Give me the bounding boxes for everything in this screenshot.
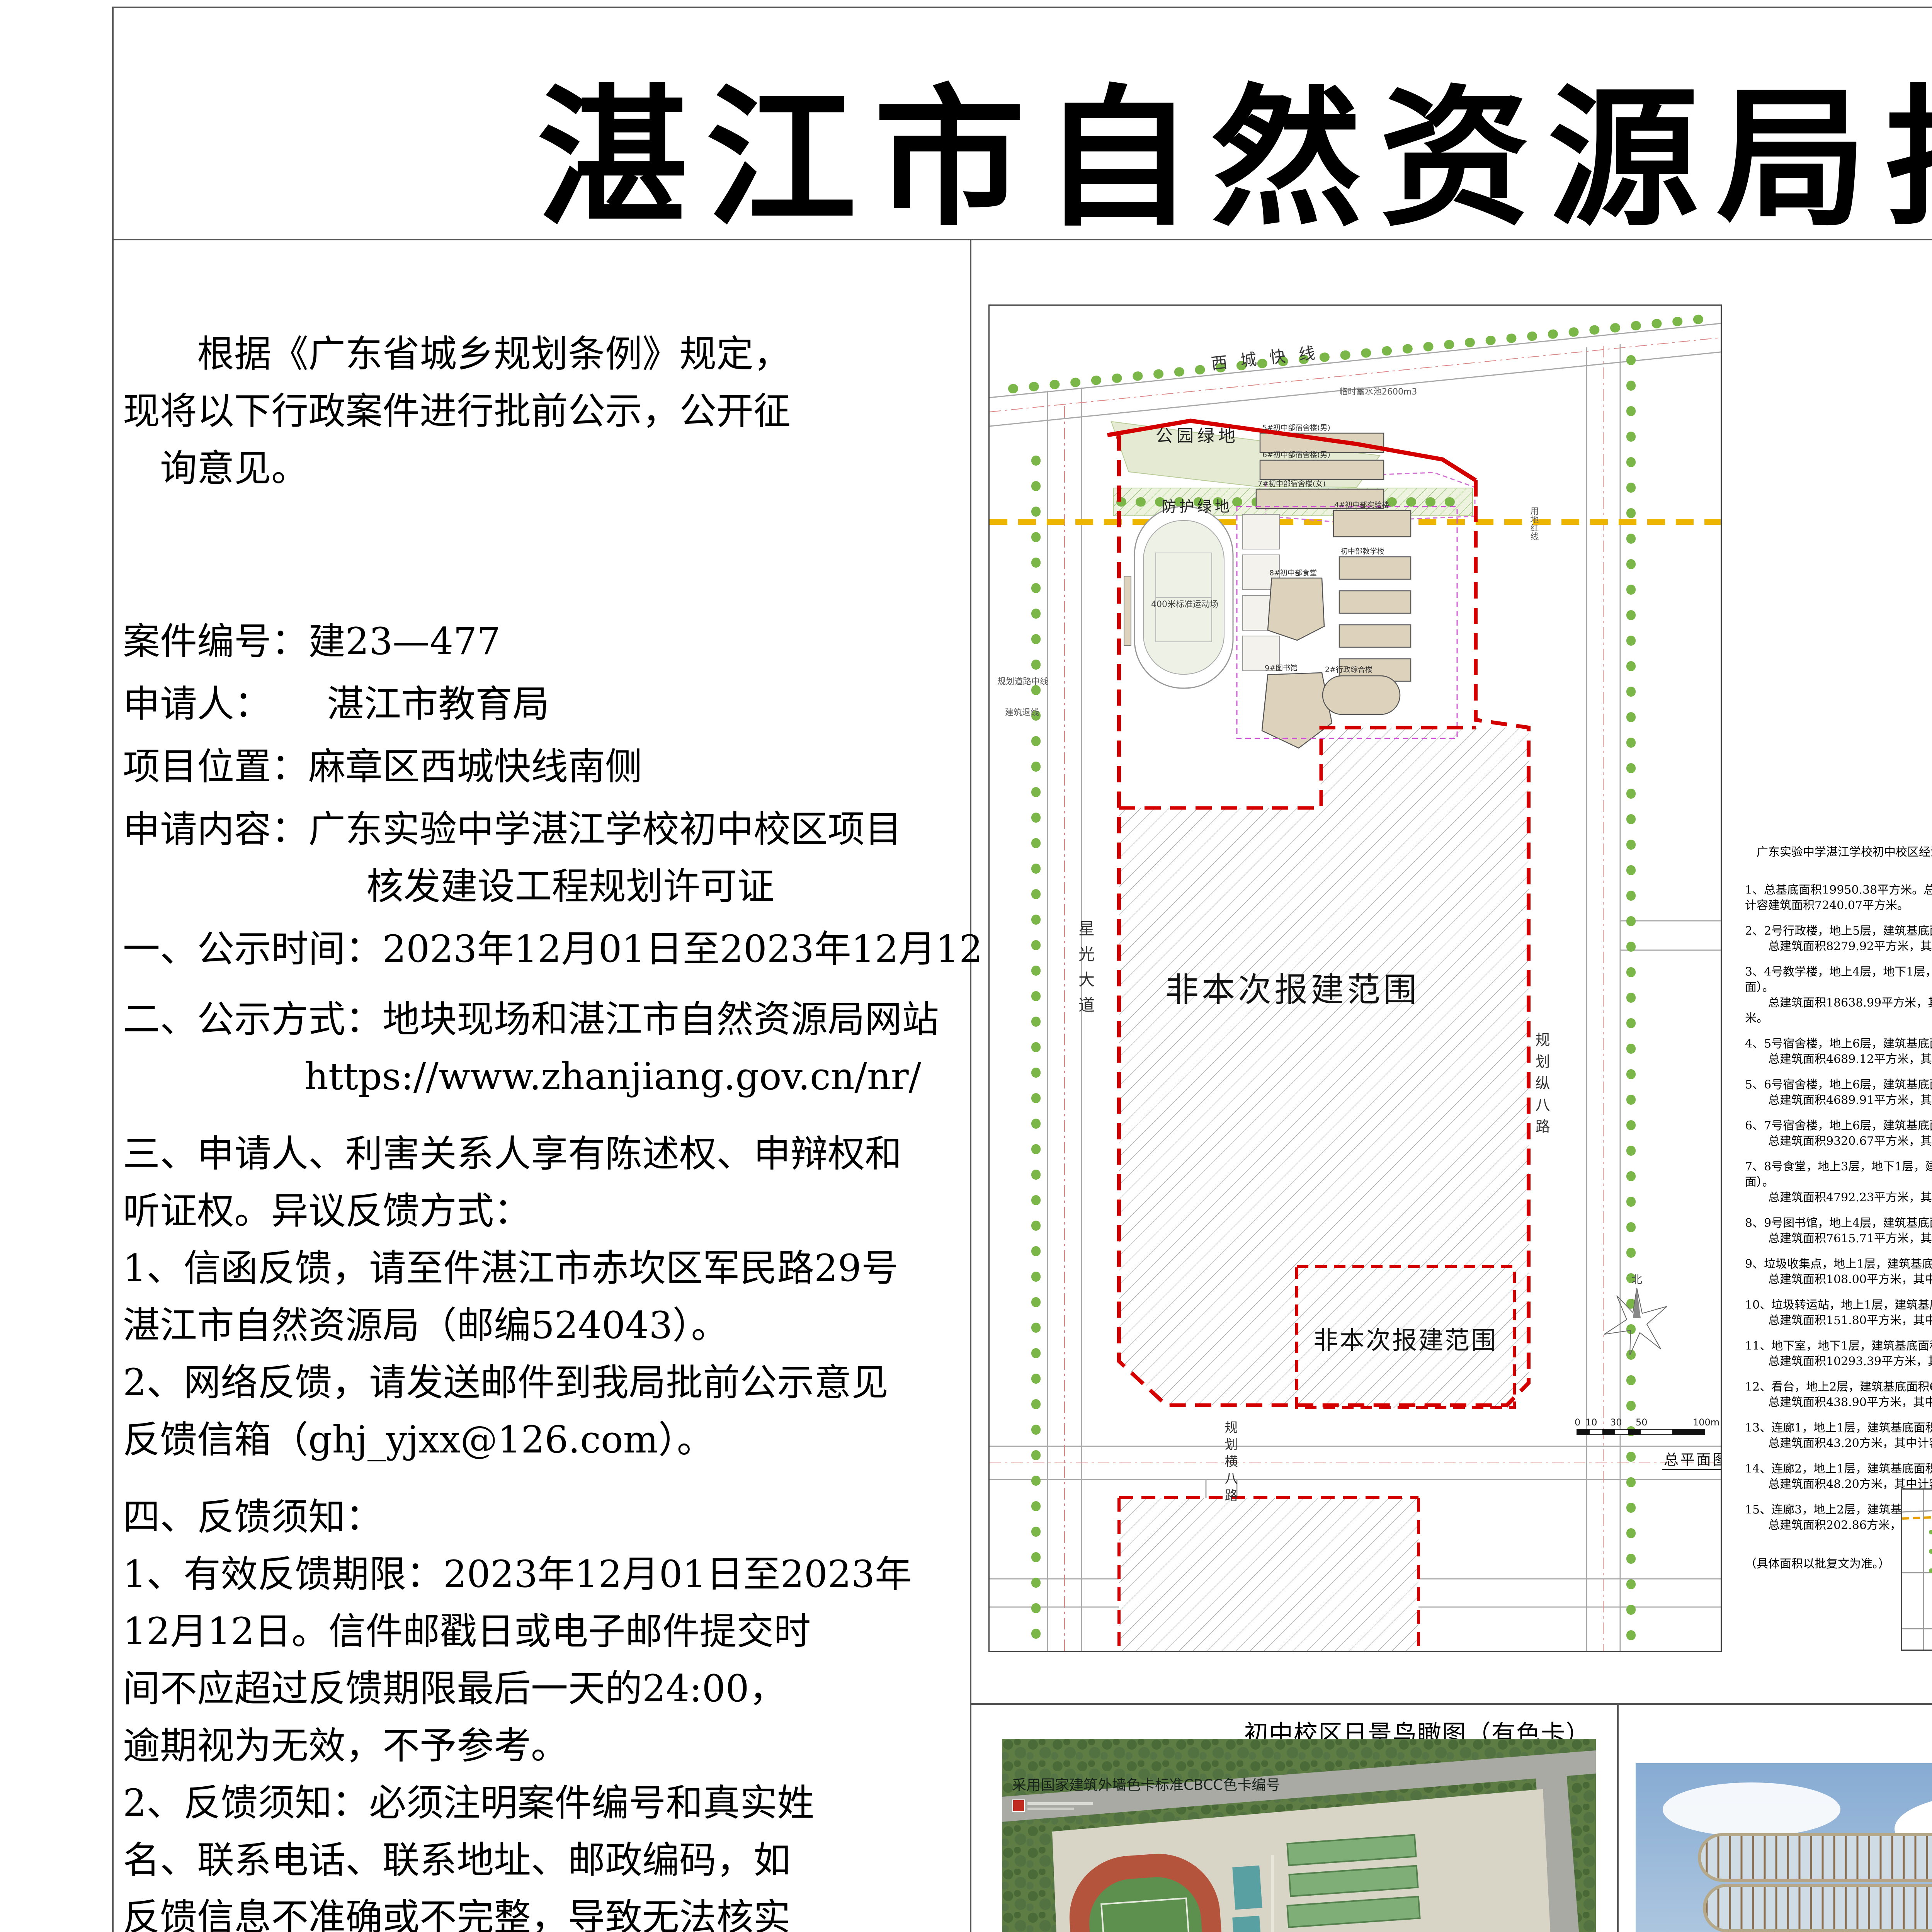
bldg-label-9: 9#图书馆: [1265, 664, 1298, 672]
indicator-item: 总建筑面积8279.92平方米，其中计容建筑面积7428.57平方米，不计容建筑…: [1745, 939, 1932, 954]
indicator-item: 总建筑面积4792.23平方米，其中计容建筑面积4355.59平方米，不计容建筑…: [1745, 1190, 1932, 1206]
website-link[interactable]: https://www.zhanjiang.gov.cn/nr/: [304, 1048, 957, 1105]
indicator-item: 总建筑面积18638.99平方米，其中计容建筑面积15028.49平方米，不计容…: [1745, 995, 1932, 1026]
page-title: 湛江市自然资源局批前公示: [112, 37, 1932, 255]
scale-0: 0: [1575, 1417, 1580, 1428]
rights-statement-2: 听证权。异议反馈方式：: [123, 1182, 957, 1240]
applicant: 申请人： 湛江市教育局: [123, 675, 957, 733]
buffer-green-label: 防护绿地: [1162, 498, 1233, 515]
indicator-item: 5、6号宿舍楼，地上6层，建筑基底面积764.94平方米，建筑高度为23.729…: [1745, 1077, 1932, 1093]
bldg-label-4: 4#初中部实验楼: [1334, 501, 1389, 509]
north-compass: 北: [1604, 1273, 1667, 1355]
feedback-deadline: 1、有效反馈期限：2023年12月01日至2023年: [123, 1546, 957, 1603]
application-content: 申请内容：广东实验中学湛江学校初中校区项目: [123, 801, 957, 858]
indicator-item: 13、连廊1，地上1层，建筑基底面积72.00平方米，建筑高度为4.10米（室外…: [1745, 1420, 1932, 1436]
application-content-2: 核发建设工程规划许可证: [366, 858, 957, 915]
feedback-requirements-3: 反馈信息不准确或不完整，导致无法核实: [123, 1889, 957, 1932]
bldg-label-6: 6#初中部宿舍楼(男): [1262, 451, 1330, 459]
road-label-xingguang: 星光大道: [1076, 920, 1095, 1022]
aerial-courts: [1232, 1866, 1262, 1932]
indicator-item: 2、2号行政楼，地上5层，建筑基底面积2517.43平方米，建筑高度为23.10…: [1745, 923, 1932, 939]
scale-30: 30: [1610, 1417, 1622, 1428]
feedback-deadline-2: 12月12日。信件邮戳日或电子邮件提交时: [123, 1603, 957, 1660]
bldg-label-8: 8#初中部食堂: [1269, 569, 1317, 577]
indicator-item: 总建筑面积43.20方米，其中计容建筑面积43.20平方米，不计容建筑面积0平方…: [1745, 1436, 1932, 1451]
publicity-period: 一、公示时间：2023年12月01日至2023年12月12日: [123, 920, 957, 978]
indicator-item: 10、垃圾转运站，地上1层，建筑基底面积151.80平方米，建筑高度为5.70米…: [1745, 1298, 1932, 1313]
email-link[interactable]: 反馈信箱（ghj_yjxx@126.com）。: [123, 1411, 957, 1468]
locator-roads: [1902, 1490, 1932, 1650]
indicator-item: 12、看台，地上2层，建筑基底面积632.58平方米，建筑高度为11.55米（室…: [1745, 1379, 1932, 1395]
notice-line: 根据《广东省城乡规划条例》规定，: [123, 325, 957, 383]
case-number: 案件编号：建23—477: [123, 613, 957, 670]
scale-bar: 0 10 30 50 100m: [1575, 1417, 1719, 1435]
master-plan-label: 总平面图: [1664, 1451, 1721, 1468]
indicators-title: 广东实验中学湛江学校初中校区经济指标如下：: [1745, 845, 1932, 860]
site-plan-drawing: 公园绿地 防护绿地 西城快线 星光大道 规划纵八路 规划横八路 400米标准运动…: [990, 306, 1721, 1651]
road-label-zongba: 规划纵八路: [1533, 1032, 1550, 1140]
notice-line: 现将以下行政案件进行批前公示，公开征: [123, 383, 957, 440]
feedback-notes-heading: 四、反馈须知：: [123, 1488, 957, 1546]
indicator-item: 6、7号宿舍楼，地上6层，建筑基底面积1540.00平方米，建筑高度为23.72…: [1745, 1118, 1932, 1134]
not-in-scope-label-1: 非本次报建范围: [1165, 971, 1420, 1009]
indicator-item: 8、9号图书馆，地上4层，建筑基底面积2021.66平方米，建筑高度为18.60…: [1745, 1216, 1932, 1231]
project-location: 项目位置：麻章区西城快线南侧: [123, 738, 957, 795]
economic-indicators: 广东实验中学湛江学校初中校区经济指标如下： 1、总基底面积19950.38平方米…: [1745, 845, 1932, 1572]
indicator-item: 1、总基底面积19950.38平方米。总建筑面积69312.90平方米，其中计容…: [1745, 883, 1932, 913]
bldg-label-teach: 初中部教学楼: [1340, 547, 1384, 556]
rights-statement: 三、申请人、利害关系人享有陈述权、申辩权和: [123, 1125, 957, 1182]
rendering-aerial-view: 采用国家建筑外墙色卡标准CBCC色卡编号: [1002, 1739, 1596, 1932]
publicity-method: 二、公示方式：地块现场和湛江市自然资源局网站: [123, 991, 957, 1048]
feedback-requirements: 2、反馈须知：必须注明案件编号和真实姓: [123, 1774, 957, 1832]
mail-feedback: 1、信函反馈，请至件湛江市赤坎区军民路29号: [123, 1240, 957, 1297]
indicator-item: 总建筑面积7615.71平方米，其中计容建筑面积6152.12平方米，不计容建筑…: [1745, 1231, 1932, 1247]
feedback-deadline-4: 逾期视为无效，不予参考。: [123, 1717, 957, 1774]
site-plan-panel: 公园绿地 防护绿地 西城快线 星光大道 规划纵八路 规划横八路 400米标准运动…: [988, 304, 1722, 1652]
locator-greens: [1929, 1518, 1932, 1573]
feedback-deadline-3: 间不应超过反馈期限最后一天的24:00，: [123, 1660, 957, 1717]
online-feedback: 2、网络反馈，请发送邮件到我局批前公示意见: [123, 1354, 957, 1411]
notice-line: 询意见。: [123, 440, 957, 497]
red-line-label: 用地红线: [1529, 507, 1539, 541]
indicator-item: 7、8号食堂，地上3层，地下1层，建筑基底面积1609.09平方米，建筑高度为1…: [1745, 1159, 1932, 1190]
scale-10: 10: [1585, 1417, 1597, 1428]
bldg-label-5: 5#初中部宿舍楼(男): [1262, 423, 1330, 432]
pond-label: 临时蓄水池2600m3: [1339, 387, 1417, 397]
indicator-item: 11、地下室，地下1层，建筑基底面积10293.39平方米。: [1745, 1338, 1932, 1354]
indicator-item: 总建筑面积4689.91平方米，其中计容建筑面积4689.91平方米，不计容建筑…: [1745, 1093, 1932, 1108]
setback-label: 建筑退线: [1005, 708, 1039, 718]
indicator-item: 总建筑面积438.90平方米，其中计容建筑面积438.90平方米，不计容建筑面积…: [1745, 1395, 1932, 1410]
notice-poster: 湛江市自然资源局批前公示 根据《广东省城乡规划条例》规定， 现将以下行政案件进行…: [0, 0, 1932, 1932]
road-center-label: 规划道路中线: [997, 677, 1048, 687]
park-green-label: 公园绿地: [1156, 426, 1239, 446]
locator-guide-line: [1902, 1514, 1932, 1519]
not-in-scope-label-2: 非本次报建范围: [1313, 1327, 1497, 1355]
indicator-item: 总建筑面积4689.12平方米，其中计容建筑面积4689.12平方米，不计容建筑…: [1745, 1052, 1932, 1067]
rendering-admin-building: 行政楼: [1636, 1763, 1932, 1932]
sports-field: [1124, 507, 1233, 688]
divider-bottom-panels: [1617, 1703, 1619, 1932]
indicator-item: 总建筑面积9320.67平方米，其中计容建筑面积8594.48平方米，不计容建筑…: [1745, 1134, 1932, 1149]
indicator-item: 总建筑面积108.00平方米，其中计容建筑面积108.00平方米，不计容建筑面积…: [1745, 1272, 1932, 1287]
aerial-overlay-note: 采用国家建筑外墙色卡标准CBCC色卡编号: [1012, 1777, 1280, 1793]
north-label: 北: [1631, 1273, 1642, 1286]
divider-bottom-row: [970, 1703, 1932, 1705]
indicator-item: 14、连廊2，地上1层，建筑基底面积76.35平方米，建筑高度为4.10米（室外…: [1745, 1461, 1932, 1477]
mail-feedback-2: 湛江市自然资源局（邮编524043）。: [123, 1297, 957, 1354]
bldg-label-7: 7#初中部宿舍楼(女): [1258, 480, 1326, 488]
scale-50: 50: [1636, 1417, 1648, 1428]
scale-100: 100m: [1693, 1417, 1719, 1428]
not-in-scope-area-south: [1119, 1498, 1418, 1651]
indicator-item: 3、4号教学楼，地上4层，地下1层，建筑基底面积5409.39平方米，建筑高度为…: [1745, 964, 1932, 995]
master-plan-title: 总平面图: [1662, 1451, 1721, 1469]
bldg-label-2: 2#行政综合楼: [1325, 665, 1372, 674]
notice-text-panel: 根据《广东省城乡规划条例》规定， 现将以下行政案件进行批前公示，公开征 询意见。…: [123, 325, 957, 1932]
indicator-item: 4、5号宿舍楼，地上6层，建筑基底面积764.94平方米，建筑高度为23.729…: [1745, 1036, 1932, 1052]
road-label-xicheng: 西城快线: [1210, 342, 1329, 373]
indicator-item: 总建筑面积10293.39平方米，其中计容建筑面积10293.39平方米，不计容…: [1745, 1354, 1932, 1369]
locator-map: [1901, 1488, 1932, 1651]
road-label-hengba: 规划横八路: [1222, 1420, 1238, 1505]
divider-left-panel: [970, 239, 971, 1932]
divider-under-title: [112, 239, 1932, 240]
track-label: 400米标准运动场: [1151, 600, 1218, 609]
feedback-requirements-2: 名、联系电话、联系地址、邮政编码，如: [123, 1832, 957, 1889]
indicator-item: 9、垃圾收集点，地上1层，建筑基底面积108.00平方米，建筑高度为3.80米（…: [1745, 1257, 1932, 1272]
indicator-item: 总建筑面积151.80平方米，其中计容建筑面积0平方米，不计容建筑面积151.8…: [1745, 1313, 1932, 1328]
